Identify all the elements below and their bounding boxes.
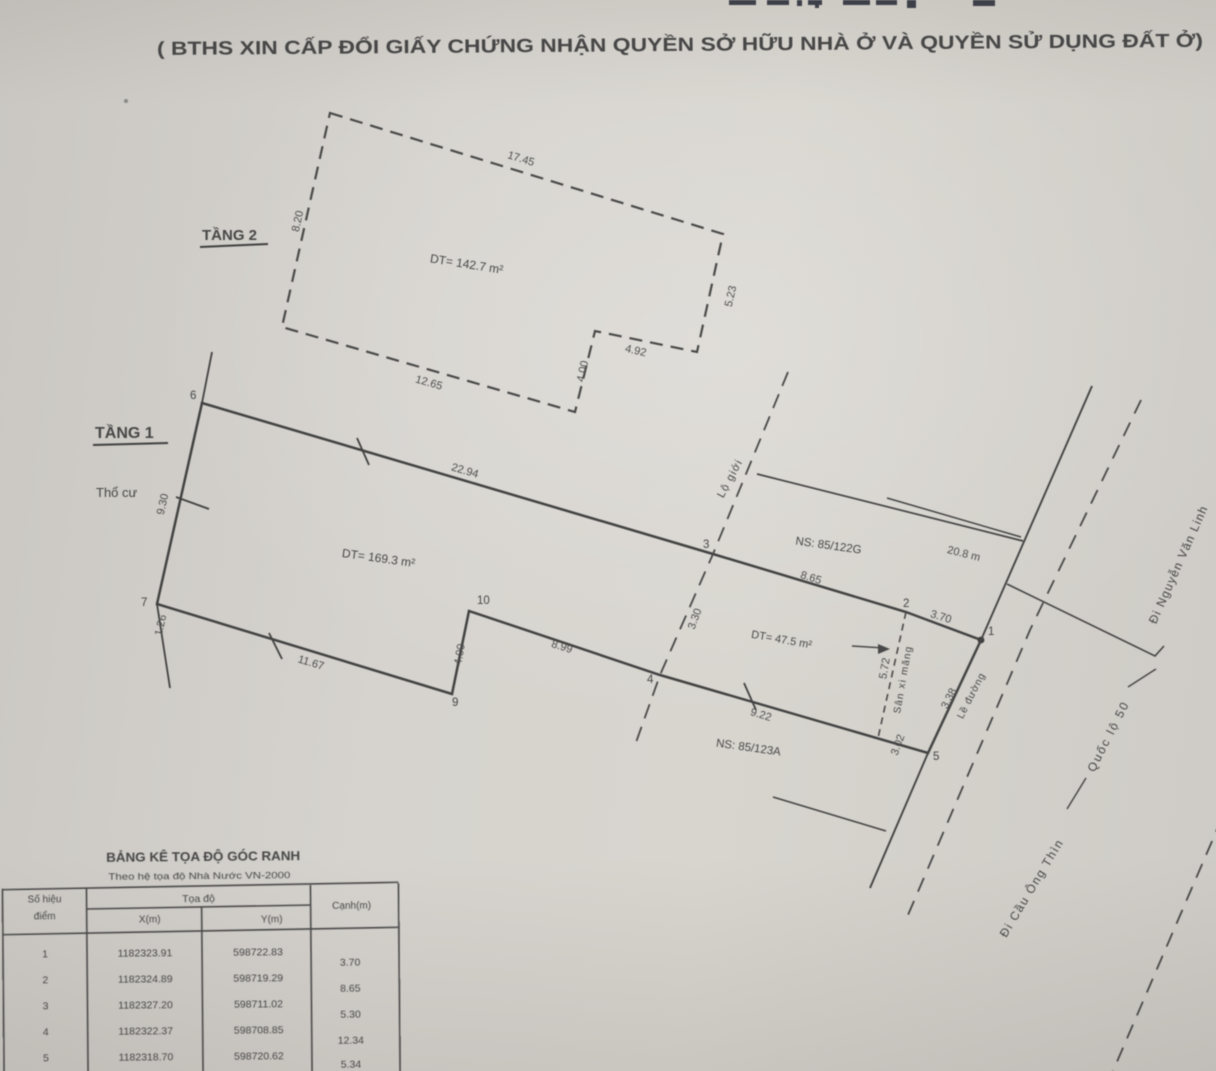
svg-text:9.30: 9.30 bbox=[155, 493, 172, 517]
svg-text:6: 6 bbox=[190, 390, 196, 402]
svg-text:598708.85: 598708.85 bbox=[234, 1024, 284, 1036]
svg-text:3: 3 bbox=[43, 1000, 49, 1012]
svg-text:DT= 47.5 m²: DT= 47.5 m² bbox=[750, 629, 813, 652]
svg-text:5.72: 5.72 bbox=[877, 657, 893, 680]
svg-text:điểm: điểm bbox=[34, 910, 56, 922]
svg-text:3.70: 3.70 bbox=[929, 608, 953, 626]
svg-text:2: 2 bbox=[903, 598, 909, 610]
svg-text:NS: 85/122G: NS: 85/122G bbox=[795, 535, 863, 556]
svg-text:4.92: 4.92 bbox=[624, 343, 648, 360]
svg-text:5.34: 5.34 bbox=[341, 1059, 362, 1071]
svg-text:9.22: 9.22 bbox=[749, 706, 773, 724]
svg-text:8.65: 8.65 bbox=[799, 569, 823, 587]
svg-text:1182322.37: 1182322.37 bbox=[118, 1025, 173, 1037]
svg-text:Cạnh(m): Cạnh(m) bbox=[332, 901, 371, 912]
svg-text:598720.62: 598720.62 bbox=[234, 1050, 284, 1062]
svg-text:Y(m): Y(m) bbox=[261, 914, 283, 925]
svg-text:TẦNG 1: TẦNG 1 bbox=[95, 423, 154, 442]
svg-text:1182318.70: 1182318.70 bbox=[119, 1051, 174, 1063]
svg-text:20.8 m: 20.8 m bbox=[946, 544, 982, 564]
svg-text:Đi Nguyễn Văn Linh: Đi Nguyễn Văn Linh bbox=[1145, 502, 1211, 625]
svg-text:DT= 169.3 m²: DT= 169.3 m² bbox=[341, 546, 416, 570]
svg-text:5.23: 5.23 bbox=[723, 285, 740, 309]
svg-text:1182324.89: 1182324.89 bbox=[118, 973, 173, 985]
svg-text:BẢNG KÊ TỌA ĐỘ GÓC RANH: BẢNG KÊ TỌA ĐỘ GÓC RANH bbox=[106, 848, 300, 865]
svg-text:Lộ giới: Lộ giới bbox=[715, 457, 745, 500]
svg-text:( BTHS XIN CẤP ĐỔI GIẤY CHỨNG: ( BTHS XIN CẤP ĐỔI GIẤY CHỨNG NHẬN QUYỀN… bbox=[157, 30, 1203, 60]
svg-text:3: 3 bbox=[703, 539, 709, 551]
svg-text:Đi Cầu Ông Thìn: Đi Cầu Ông Thìn bbox=[996, 836, 1067, 940]
svg-text:4: 4 bbox=[647, 674, 654, 686]
svg-text:Tọa độ: Tọa độ bbox=[182, 893, 215, 905]
svg-text:1: 1 bbox=[988, 626, 994, 638]
svg-text:Theo hệ tọa độ Nhà Nước VN-200: Theo hệ tọa độ Nhà Nước VN-2000 bbox=[108, 870, 290, 882]
svg-text:Quốc lộ 50: Quốc lộ 50 bbox=[1084, 698, 1132, 774]
svg-text:598719.29: 598719.29 bbox=[233, 972, 283, 984]
svg-text:4.00: 4.00 bbox=[452, 643, 468, 666]
svg-text:3.30: 3.30 bbox=[686, 607, 705, 631]
svg-text:TẦNG 2: TẦNG 2 bbox=[202, 227, 257, 244]
svg-text:598722.83: 598722.83 bbox=[233, 946, 283, 958]
svg-text:4: 4 bbox=[43, 1026, 49, 1038]
svg-text:Sân xi măng: Sân xi măng bbox=[892, 645, 915, 715]
svg-text:Lề đường: Lề đường bbox=[955, 671, 989, 721]
svg-text:8.65: 8.65 bbox=[340, 983, 361, 995]
svg-text:598711.02: 598711.02 bbox=[234, 998, 283, 1010]
svg-text:1: 1 bbox=[42, 948, 48, 960]
svg-text:X(m): X(m) bbox=[139, 914, 161, 925]
svg-text:5: 5 bbox=[933, 751, 939, 763]
svg-text:17.45: 17.45 bbox=[506, 149, 536, 169]
svg-text:Số hiệu: Số hiệu bbox=[28, 893, 62, 905]
svg-text:4.00: 4.00 bbox=[575, 360, 591, 383]
svg-text:10: 10 bbox=[477, 595, 490, 607]
svg-text:2: 2 bbox=[42, 974, 48, 986]
svg-text:1182323.91: 1182323.91 bbox=[118, 947, 173, 959]
svg-text:1182327.20: 1182327.20 bbox=[118, 999, 173, 1011]
svg-text:12.65: 12.65 bbox=[414, 374, 444, 393]
svg-text:Thổ cư: Thổ cư bbox=[96, 485, 138, 500]
svg-text:DT= 142.7 m²: DT= 142.7 m² bbox=[429, 251, 504, 276]
svg-text:11.67: 11.67 bbox=[296, 653, 325, 672]
svg-text:9: 9 bbox=[452, 697, 458, 709]
svg-text:5: 5 bbox=[43, 1052, 49, 1064]
svg-text:NS: 85/123A: NS: 85/123A bbox=[715, 738, 782, 759]
svg-text:12.34: 12.34 bbox=[338, 1035, 365, 1047]
svg-text:1.26: 1.26 bbox=[153, 614, 170, 638]
svg-text:5.30: 5.30 bbox=[340, 1009, 361, 1021]
svg-text:3.70: 3.70 bbox=[340, 957, 361, 969]
svg-text:8.99: 8.99 bbox=[550, 638, 574, 656]
svg-text:7: 7 bbox=[141, 597, 147, 609]
